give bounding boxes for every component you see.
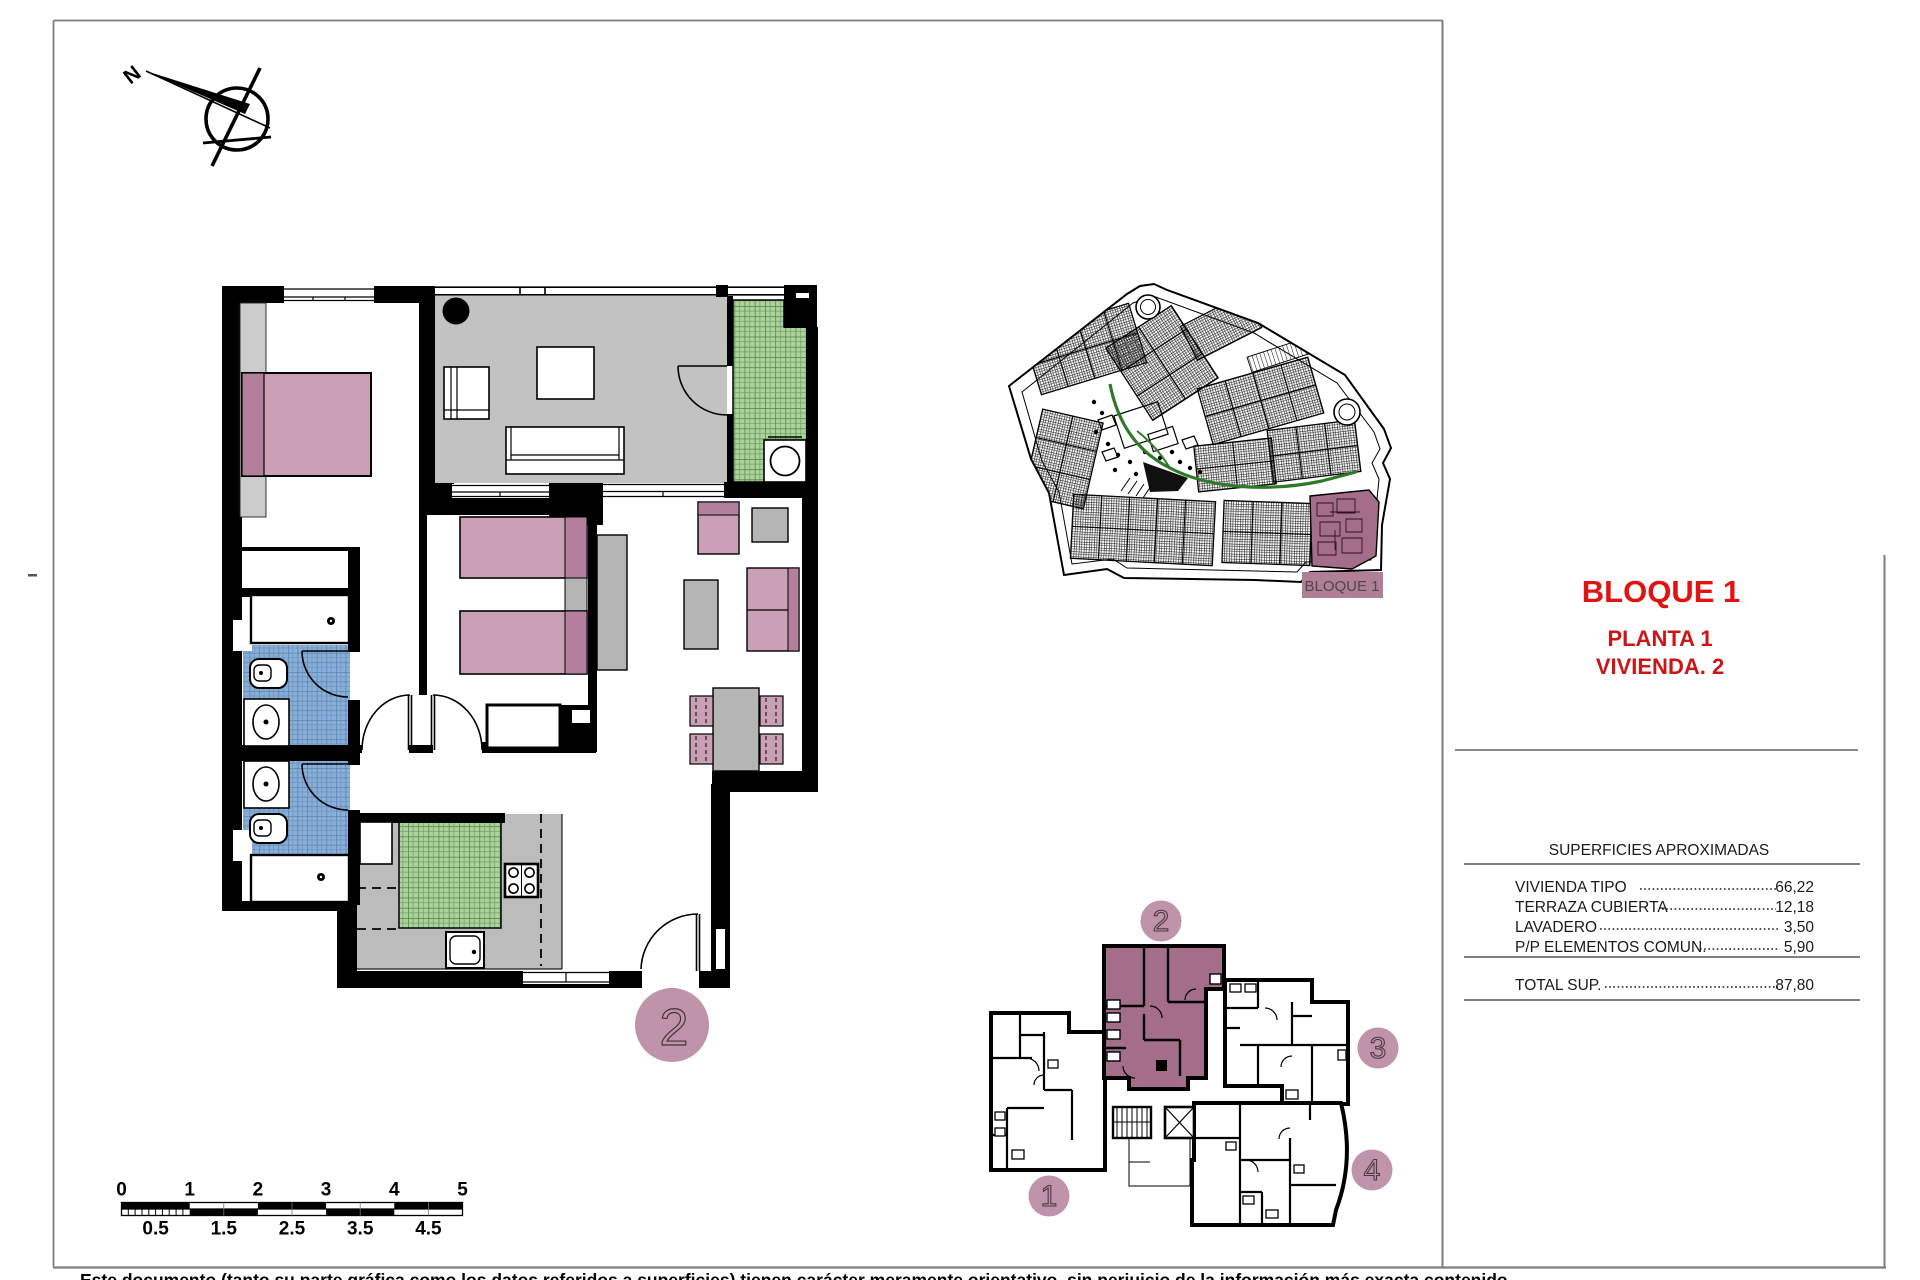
svg-text:3.5: 3.5 <box>347 1219 374 1240</box>
svg-text:66,22: 66,22 <box>1775 879 1814 896</box>
svg-text:4.5: 4.5 <box>415 1219 442 1240</box>
svg-text:5,90: 5,90 <box>1784 939 1815 956</box>
svg-text:2: 2 <box>253 1180 264 1201</box>
svg-text:4: 4 <box>1364 1154 1381 1187</box>
svg-text:3,50: 3,50 <box>1784 919 1815 936</box>
svg-text:1: 1 <box>1041 1180 1058 1213</box>
svg-text:VIVIENDA TIPO: VIVIENDA TIPO <box>1515 879 1627 896</box>
svg-text:P/P ELEMENTOS COMUN.: P/P ELEMENTOS COMUN. <box>1515 939 1707 956</box>
svg-text:2: 2 <box>660 999 689 1057</box>
svg-text:12,18: 12,18 <box>1775 899 1814 916</box>
svg-text:0.5: 0.5 <box>142 1219 169 1240</box>
svg-text:2.5: 2.5 <box>279 1219 306 1240</box>
svg-text:4: 4 <box>389 1180 400 1201</box>
svg-text:BLOQUE 1: BLOQUE 1 <box>1582 574 1740 609</box>
svg-text:TERRAZA CUBIERTA: TERRAZA CUBIERTA <box>1515 899 1668 916</box>
svg-text:LAVADERO: LAVADERO <box>1515 919 1597 936</box>
svg-text:VIVIENDA. 2: VIVIENDA. 2 <box>1596 654 1724 679</box>
svg-text:0: 0 <box>116 1180 127 1201</box>
svg-text:Este documento (tanto su parte: Este documento (tanto su parte gráfica c… <box>80 1270 1508 1280</box>
svg-text:2: 2 <box>1153 905 1170 938</box>
svg-text:TOTAL SUP.: TOTAL SUP. <box>1515 977 1601 994</box>
svg-text:5: 5 <box>457 1180 468 1201</box>
svg-text:1: 1 <box>184 1180 195 1201</box>
svg-text:3: 3 <box>321 1180 332 1201</box>
svg-text:BLOQUE 1: BLOQUE 1 <box>1304 578 1379 595</box>
svg-text:87,80: 87,80 <box>1775 977 1814 994</box>
svg-text:SUPERFICIES APROXIMADAS: SUPERFICIES APROXIMADAS <box>1549 842 1770 859</box>
svg-text:3: 3 <box>1370 1032 1387 1065</box>
svg-text:1.5: 1.5 <box>211 1219 238 1240</box>
svg-text:PLANTA 1: PLANTA 1 <box>1607 626 1712 651</box>
